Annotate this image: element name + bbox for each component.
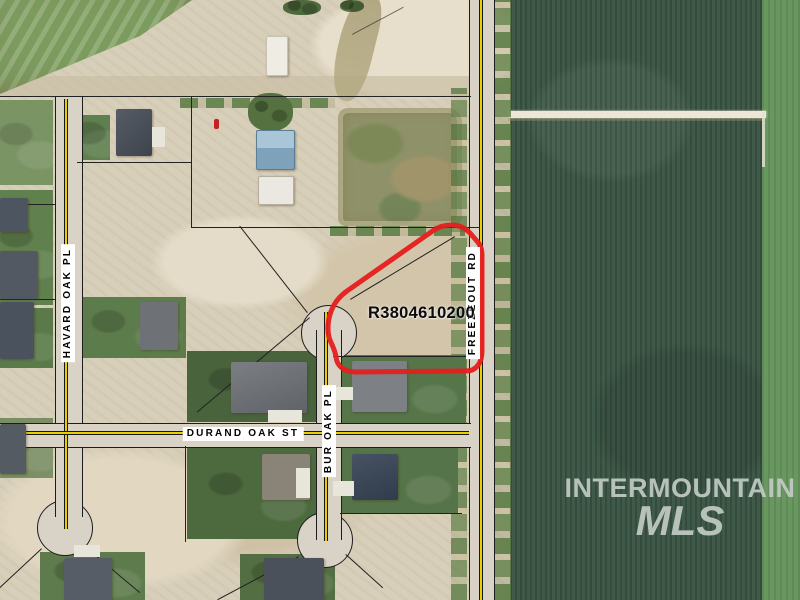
driveway [268, 410, 302, 422]
parcel-line [191, 97, 192, 228]
parcel-id-label: R3804610200 [368, 304, 475, 323]
pasture-field [338, 108, 462, 226]
house-roof [352, 361, 407, 412]
street-label-bur-oak-pl: BUR OAK PL [318, 385, 336, 477]
house-roof [231, 362, 307, 413]
mls-watermark: INTERMOUNTAIN MLS [558, 474, 800, 541]
street-label-text: FREEZEOUT RD [466, 247, 480, 359]
house-roof [64, 558, 112, 600]
dirt-track-band [0, 76, 470, 96]
driveway [152, 127, 165, 147]
house-roof [0, 302, 34, 359]
house-roof [264, 558, 324, 600]
street-label-text: DURAND OAK ST [183, 427, 304, 441]
field-access-path [508, 111, 766, 118]
street-label-freezeout-rd: FREEZEOUT RD [462, 247, 480, 359]
street-label-text: BUR OAK PL [322, 385, 336, 477]
driveway [296, 468, 310, 498]
parcel-line [0, 299, 55, 300]
blue-roof-building [256, 130, 295, 170]
red-vehicle [214, 119, 219, 129]
house-roof [140, 302, 178, 350]
house-roof [352, 454, 398, 500]
house-roof [0, 198, 28, 232]
parcel-line [77, 162, 191, 163]
watermark-line2: MLS [558, 501, 800, 541]
tree-cluster [248, 93, 293, 131]
street-label-havard-oak-pl: HAVARD OAK PL [57, 244, 75, 362]
parcel-line [333, 356, 466, 357]
parcel-line [191, 227, 480, 228]
tree-cluster [340, 0, 364, 12]
street-label-text: HAVARD OAK PL [61, 244, 75, 362]
mls-aerial-map: HAVARD OAK PL DURAND OAK ST BUR OAK PL F… [0, 0, 800, 600]
lawn-patch [0, 100, 53, 185]
driveway [333, 481, 354, 496]
street-label-durand-oak-st: DURAND OAK ST [183, 423, 304, 441]
lawn-patch [80, 115, 110, 160]
field-path-spur [762, 112, 765, 167]
parcel-line [185, 446, 186, 542]
house-roof [0, 251, 38, 299]
roadside-vegetation-east [494, 0, 511, 600]
driveway [74, 545, 100, 557]
shed-roof [266, 36, 288, 76]
house-roof [0, 424, 26, 474]
parcel-line [340, 513, 462, 514]
driveway [334, 387, 353, 400]
parcel-line [0, 96, 471, 97]
house-roof [116, 109, 152, 156]
white-roof-building [258, 176, 294, 205]
tree-cluster [283, 0, 321, 15]
